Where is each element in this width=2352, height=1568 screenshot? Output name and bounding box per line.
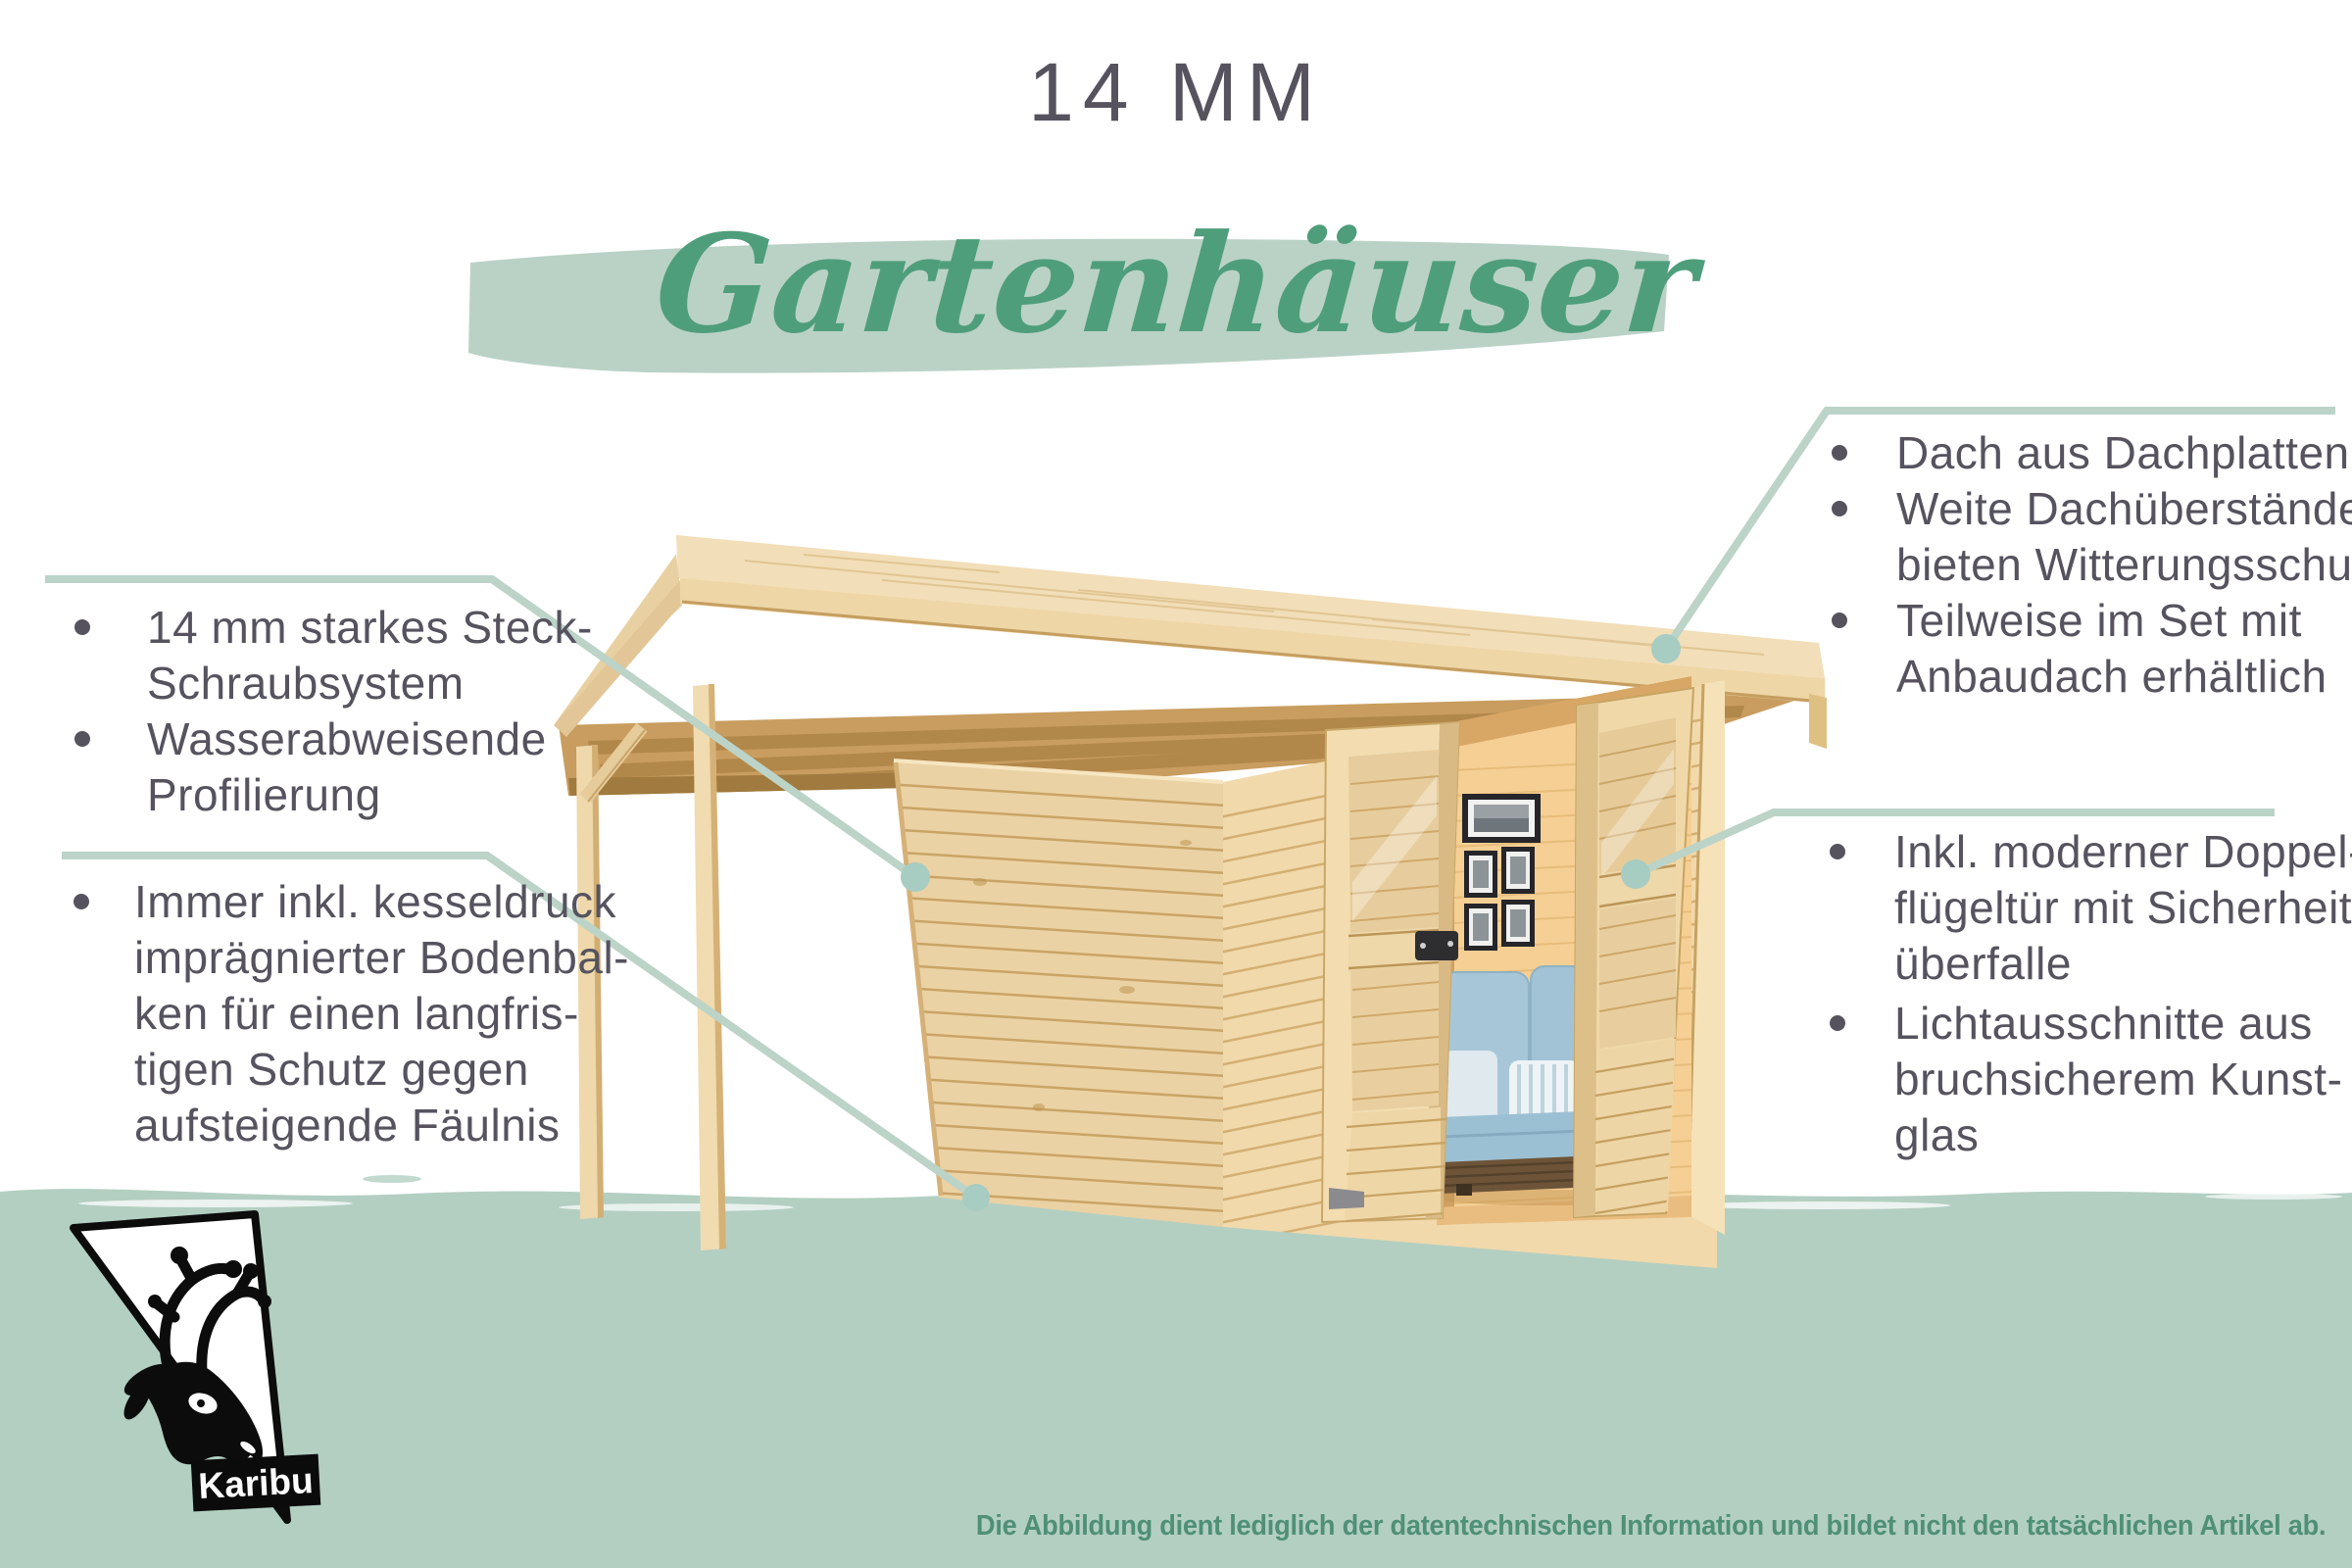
feature-group-right-bottom: Inkl. moderner Doppel- flügeltür mit Sic… [1894, 824, 2352, 1163]
callout-dot-door [1621, 859, 1650, 889]
feature-line: Weite Dachüberstände [1896, 481, 2352, 537]
feature-text: überfalle [1894, 938, 2072, 989]
feature-text: glas [1894, 1109, 1979, 1160]
feature-line: glas [1894, 1107, 2352, 1163]
feature-line: Inkl. moderner Doppel- [1894, 824, 2352, 880]
infographic-page: Karibu 14 MM Gartenhäuser 14 mm starkes … [0, 0, 2352, 1568]
feature-text: Wasserabweisende [147, 713, 547, 764]
bullet-icon [1830, 844, 1845, 859]
feature-text: Profilierung [147, 769, 381, 820]
feature-line: flügeltür mit Sicherheits- [1894, 880, 2352, 936]
side-wall [887, 760, 1227, 1227]
feature-line: imprägnierter Bodenbal- [134, 930, 629, 986]
feature-line: Profilierung [147, 767, 593, 823]
feature-text: Immer inkl. kesseldruck [134, 876, 616, 927]
feature-line: überfalle [1894, 936, 2352, 992]
feature-line: bieten Witterungsschutz [1896, 537, 2352, 593]
karibu-wordmark: Karibu [197, 1460, 314, 1506]
feature-line: 14 mm starkes Steck- [147, 600, 593, 656]
script-title: Gartenhäuser [0, 204, 2352, 364]
feature-text: bruchsicherem Kunst- [1894, 1053, 2342, 1104]
callout-dot-roof [1651, 634, 1681, 663]
feature-group-right-top: Dach aus Dachplatten Weite Dachüberständ… [1896, 425, 2352, 705]
roof-right-cap [1809, 694, 1827, 749]
bullet-icon [1832, 612, 1847, 628]
bullet-icon [73, 894, 89, 909]
feature-text: Lichtausschnitte aus [1894, 998, 2313, 1049]
feature-text: ken für einen langfris- [134, 988, 579, 1039]
feature-line: Anbaudach erhältlich [1896, 649, 2352, 705]
feature-text: aufsteigende Fäulnis [134, 1100, 561, 1151]
callout-dot-base [962, 1184, 990, 1211]
feature-text: tigen Schutz gegen [134, 1044, 529, 1095]
feature-text: bieten Witterungsschutz [1896, 539, 2352, 590]
feature-text: Weite Dachüberstände [1896, 483, 2352, 534]
feature-line: Schraubsystem [147, 656, 593, 711]
ground-band [0, 1175, 2352, 1568]
feature-line: Teilweise im Set mit [1896, 593, 2352, 649]
door-left [1322, 722, 1459, 1222]
feature-text: Inkl. moderner Doppel- [1894, 826, 2352, 877]
feature-text: imprägnierter Bodenbal- [134, 932, 629, 983]
bullet-icon [74, 731, 90, 747]
callout-dot-wall [901, 862, 930, 892]
feature-line: Wasserabweisende [147, 711, 593, 767]
bullet-icon [1832, 501, 1847, 516]
page-title: 14 MM [0, 45, 2352, 140]
feature-text: Teilweise im Set mit [1896, 595, 2302, 646]
feature-group-left-top: 14 mm starkes Steck- Schraubsystem Wasse… [147, 600, 593, 823]
feature-text: Dach aus Dachplatten [1896, 427, 2350, 478]
bullet-icon [1830, 1015, 1845, 1031]
feature-text: 14 mm starkes Steck- [147, 602, 593, 653]
feature-line: bruchsicherem Kunst- [1894, 1052, 2352, 1107]
bullet-icon [1832, 445, 1847, 461]
feature-line: aufsteigende Fäulnis [134, 1098, 629, 1153]
feature-line: ken für einen langfris- [134, 986, 629, 1042]
feature-line: tigen Schutz gegen [134, 1042, 629, 1098]
feature-line: Lichtausschnitte aus [1894, 996, 2352, 1052]
feature-line: Immer inkl. kesseldruck [134, 874, 629, 930]
feature-line: Dach aus Dachplatten [1896, 425, 2352, 481]
footer-disclaimer: Die Abbildung dient lediglich der datent… [976, 1510, 2326, 1543]
picture-frames [1462, 794, 1541, 951]
feature-text: flügeltür mit Sicherheits- [1894, 882, 2352, 933]
feature-text: Anbaudach erhältlich [1896, 651, 2327, 702]
feature-text: Schraubsystem [147, 658, 465, 709]
feature-group-left-bottom: Immer inkl. kesseldruck imprägnierter Bo… [134, 874, 629, 1153]
garden-house-illustration [554, 535, 1827, 1268]
bullet-icon [74, 619, 90, 635]
